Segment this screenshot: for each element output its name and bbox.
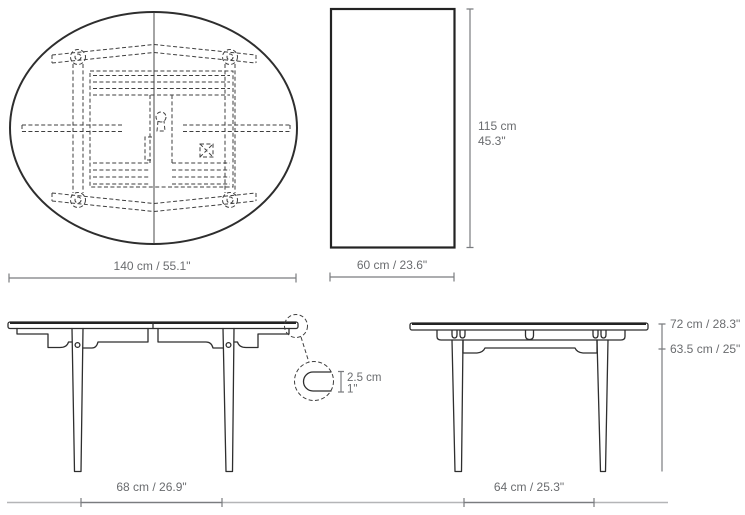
dimension-drawing-page: 140 cm / 55.1" 60 cm / 23.6" 115 cm 45.3… [0,0,745,515]
leaf-width-dimension [330,273,454,282]
leaf-width-label: 60 cm / 23.6" [357,258,427,272]
upper-slide-slats [93,76,230,96]
height-dimension [659,324,666,472]
side-left-leg [72,329,83,472]
total-height-label: 72 cm / 28.3" [670,317,740,331]
end-elevation [410,323,648,472]
side-left-edge-trim [17,329,72,348]
edge-detail [285,315,334,401]
side-right-edge-trim [234,329,289,348]
end-span-label: 64 cm / 25.3" [494,480,564,494]
thickness-label-in: 1" [347,384,357,396]
leg-position-circle [71,50,86,65]
end-apron-rail [463,340,597,353]
dimension-labels: 140 cm / 55.1" 60 cm / 23.6" 115 cm 45.3… [114,119,741,494]
detail-link-line [301,337,309,363]
leaf-height-label-cm: 115 cm [478,119,516,133]
plan-underframe-dashed [22,45,290,212]
side-span-label: 68 cm / 26.9" [116,480,186,494]
keyhole-fitting [156,112,166,122]
plan-width-label: 140 cm / 55.1" [114,259,191,273]
middle-stretchers [22,125,290,132]
leg-dowel-circle [227,197,233,203]
leg-position-circle [223,193,238,208]
side-right-dowel [226,343,231,348]
side-left-dowel [75,343,80,348]
dimensions [9,9,666,507]
end-right-leg [597,340,608,472]
leaf-view [331,9,455,248]
leg-position-circle [71,193,86,208]
leg-dowel-circle [227,54,233,60]
lower-slide-slats [93,163,230,184]
latch-fitting [200,144,213,157]
side-elevation [8,322,298,472]
thickness-dimension [338,372,344,393]
plan-width-dimension [9,274,296,283]
leaf-height-label-in: 45.3" [478,134,506,148]
leg-position-circle [223,50,238,65]
extension-leaf-outline [331,9,455,248]
side-leg-span-dimension [81,498,222,507]
detail-magnifier-circle [295,362,334,401]
drawing-svg: 140 cm / 55.1" 60 cm / 23.6" 115 cm 45.3… [0,0,745,515]
detail-source-circle [285,315,308,338]
side-apron [83,329,223,349]
plan-view [10,12,297,244]
slide-end-stubs [452,331,606,340]
leg-dowel-circle [75,54,81,60]
end-leg-span-dimension [464,498,594,507]
thickness-label-cm: 2.5 cm [347,372,382,384]
side-right-leg [223,329,234,472]
clearance-height-label: 63.5 cm / 25" [670,342,740,356]
leg-dowel-circle [75,197,81,203]
leaf-height-dimension [467,9,474,248]
end-left-leg [452,340,463,472]
edge-profile-magnified [304,372,332,391]
center-beam-lines [145,95,172,163]
